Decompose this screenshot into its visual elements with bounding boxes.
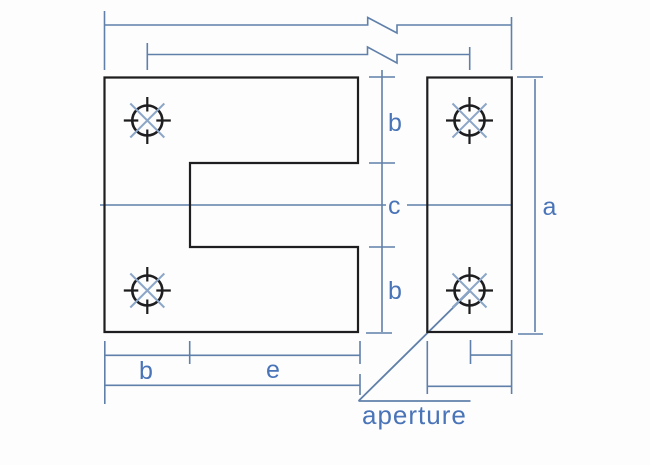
- svg-text:a: a: [543, 193, 557, 221]
- svg-text:b: b: [388, 277, 402, 305]
- svg-text:aperture: aperture: [362, 400, 467, 430]
- svg-text:c: c: [388, 192, 401, 220]
- svg-text:b: b: [139, 357, 153, 385]
- svg-text:e: e: [266, 356, 280, 384]
- svg-text:b: b: [388, 109, 402, 137]
